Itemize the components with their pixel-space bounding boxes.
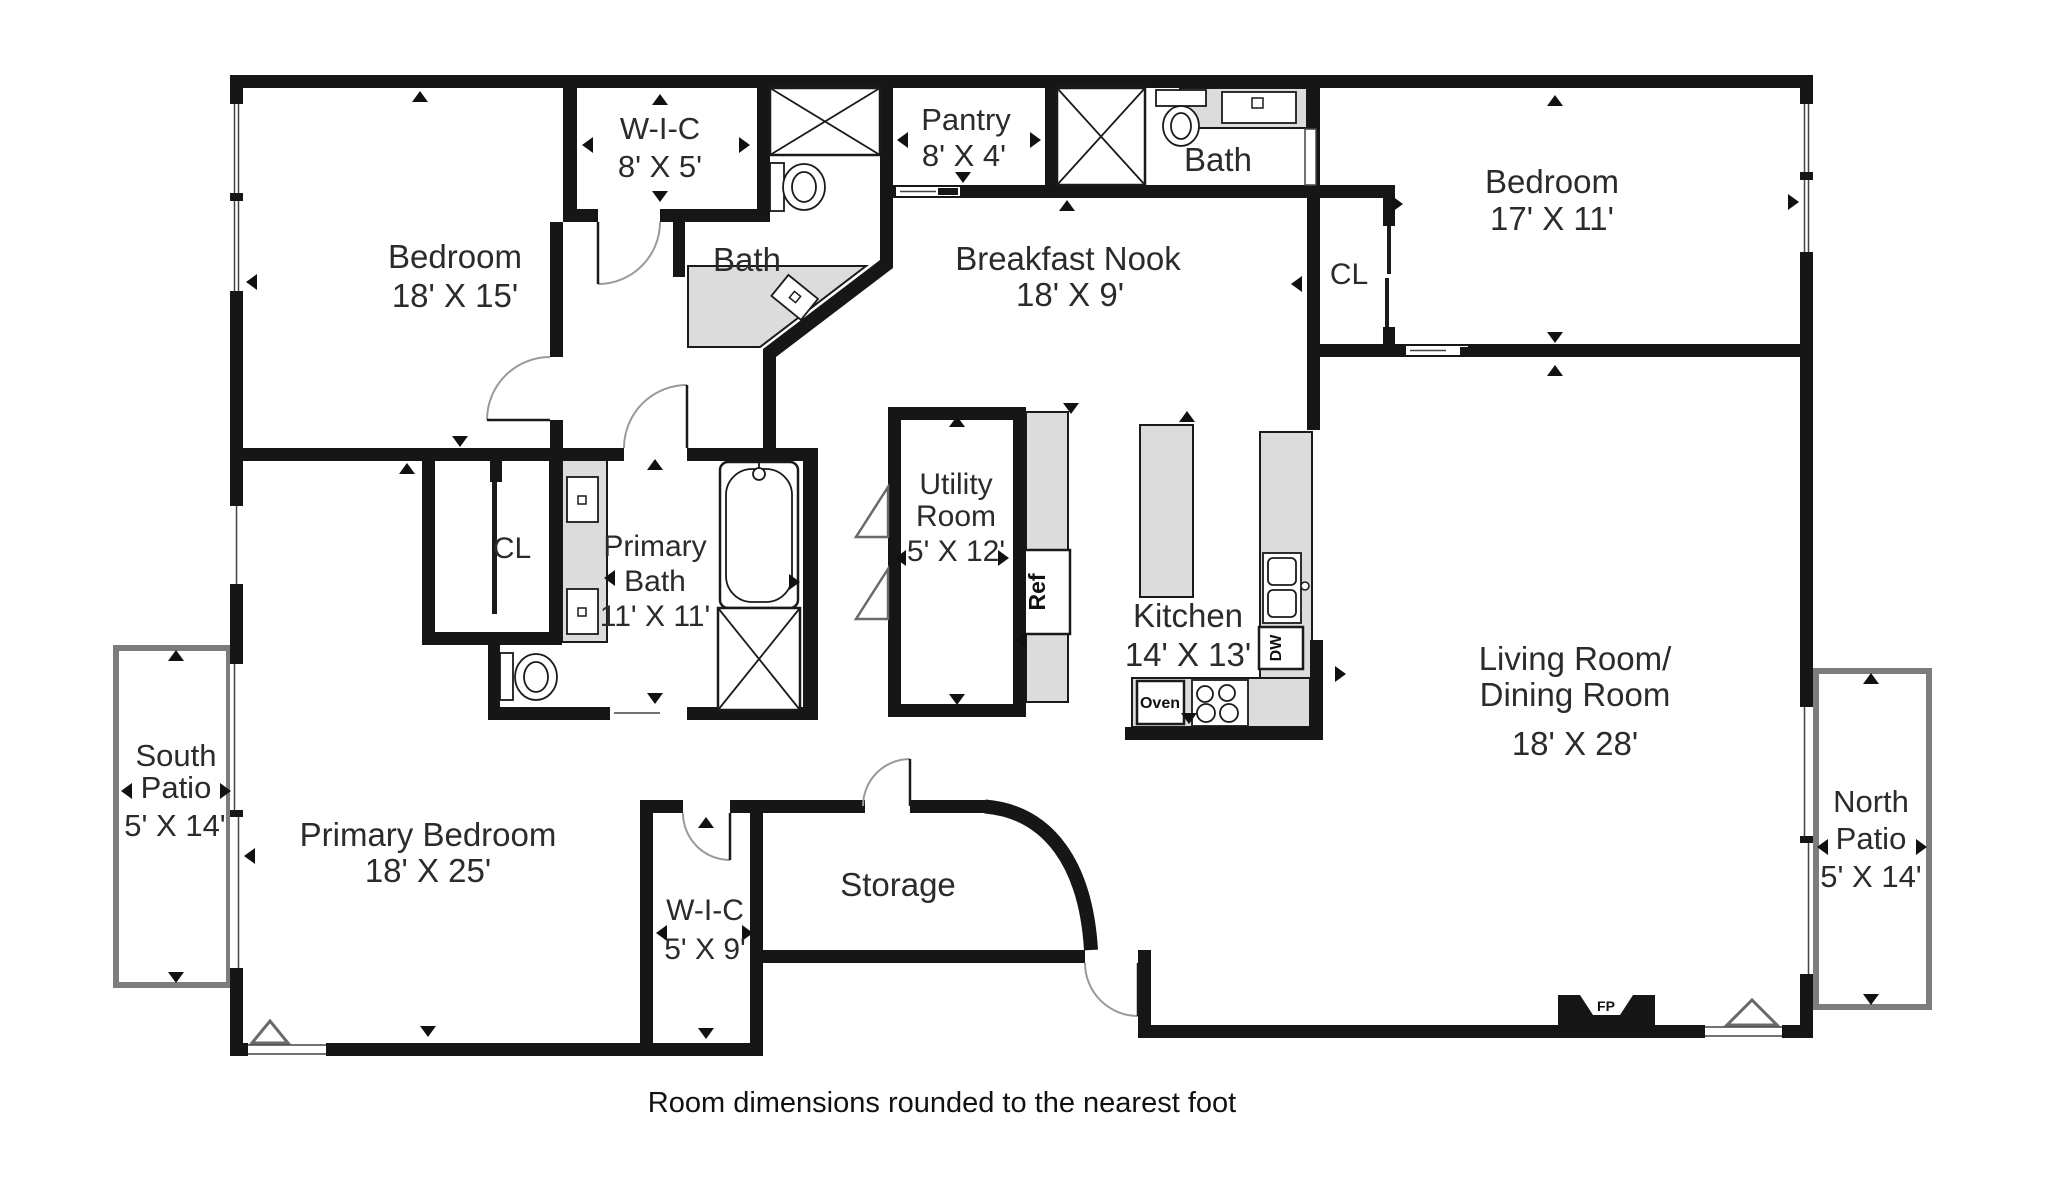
label-fireplace: FP	[1597, 998, 1615, 1014]
wall-pbath-east	[803, 448, 818, 720]
dimension-arrow	[246, 274, 257, 290]
dimension-arrow	[1030, 132, 1041, 148]
dimension-arrow	[1179, 411, 1195, 422]
toilet-bath1	[770, 163, 825, 211]
label-pantry: Pantry 8' X 4'	[921, 102, 1011, 173]
label-closet-tr: CL	[1330, 258, 1368, 291]
room-name: Primary Bedroom	[300, 816, 557, 853]
room-dims: 14' X 13'	[1125, 636, 1251, 673]
wall-utility-south	[888, 704, 1026, 717]
door-bedroom2-entry	[1406, 346, 1486, 355]
wall-wic1-west	[563, 88, 577, 209]
burner-1	[1197, 686, 1213, 702]
primary-sink-1-drain	[578, 496, 586, 504]
door-exterior-sw	[248, 1021, 326, 1056]
dimension-arrow	[412, 91, 428, 102]
wall-pantry-east	[1045, 88, 1057, 198]
dimension-arrow	[897, 132, 908, 148]
wall-entry-jog	[1138, 950, 1151, 1038]
wall-pcl-south	[422, 632, 562, 645]
wall-pcl-east	[549, 448, 562, 645]
room-name-2: Patio	[141, 770, 212, 805]
label-primary-bedroom: Primary Bedroom 18' X 25'	[300, 816, 557, 889]
toilet-bath2	[1156, 90, 1206, 146]
door-primary-bath-pocket	[610, 707, 687, 720]
wall-bedroom2-south	[1307, 344, 1813, 357]
label-bath-upper-left: Bath	[713, 241, 781, 278]
room-dims: 8' X 5'	[618, 149, 702, 184]
dimension-arrow	[698, 817, 714, 828]
wall-bath2-south	[1057, 185, 1395, 198]
shower-primary	[718, 608, 800, 710]
floor-plan-page: Bedroom 18' X 15' W-I-C 8' X 5' Bath Pan…	[0, 0, 2048, 1190]
dimension-arrow	[652, 94, 668, 105]
wall-wic1-south-a	[563, 209, 598, 222]
room-name: Bedroom	[388, 238, 522, 275]
sliding-door-north-patio	[1800, 700, 1813, 981]
label-wic-bottom: W-I-C 5' X 9'	[664, 894, 746, 966]
dimension-arrow	[582, 137, 593, 153]
window-bedroom2	[1800, 97, 1813, 259]
shower-bath1	[770, 88, 880, 155]
wall-kitchen-east-stub	[1310, 640, 1323, 727]
wall-divider-b	[687, 448, 818, 461]
burner-3	[1197, 704, 1215, 722]
bath2-sink-drain	[1252, 98, 1263, 108]
room-dims: 5' X 12'	[907, 535, 1005, 568]
kitchen-island	[1140, 425, 1193, 597]
sliding-door-south-patio	[230, 657, 243, 975]
door-bedroom1	[487, 357, 550, 420]
wall-wic2-north-b	[730, 800, 763, 813]
cltr-bifold-b	[1385, 278, 1389, 327]
wall-storage-north-b	[910, 800, 990, 813]
wall-north	[230, 75, 1813, 88]
room-dims: 5' X 9'	[664, 933, 746, 966]
window-primary-bedroom	[230, 500, 243, 590]
bathtub	[720, 462, 798, 608]
wall-nook-east	[1307, 185, 1320, 430]
wall-wic2-west	[640, 800, 653, 1043]
dimension-arrow	[739, 137, 750, 153]
shower-bath2	[1057, 88, 1145, 185]
wall-bedroom1-east-b	[550, 420, 563, 448]
label-bedroom-tr: Bedroom 17' X 11'	[1485, 163, 1619, 237]
room-name-2: Bath	[624, 565, 686, 598]
wall-wic1-east	[757, 88, 770, 222]
burner-4	[1220, 704, 1238, 722]
dimension-arrow	[1547, 332, 1563, 343]
room-dims: 11' X 11'	[600, 600, 710, 633]
label-oven: Oven	[1140, 695, 1180, 712]
room-name: Kitchen	[1133, 597, 1243, 634]
label-dishwasher: DW	[1268, 634, 1285, 662]
wall-utility-west	[888, 407, 901, 717]
floor-plan-drawing: Bedroom 18' X 15' W-I-C 8' X 5' Bath Pan…	[0, 0, 2048, 1190]
wall-hall-connector	[763, 349, 776, 448]
dimension-arrow	[652, 191, 668, 202]
room-dims: 8' X 4'	[922, 138, 1006, 173]
wall-utility-east	[1013, 407, 1026, 717]
door-primary-bath	[624, 385, 687, 448]
utility-door-leaf-1	[856, 487, 888, 537]
kitchen-faucet	[1301, 582, 1309, 590]
room-dims: 18' X 15'	[392, 277, 518, 314]
label-primary-bath: Primary Bath 11' X 11'	[600, 530, 710, 633]
room-name-1: North	[1833, 784, 1909, 819]
dimension-arrow	[1547, 95, 1563, 106]
room-dims: 5' X 14'	[1820, 859, 1921, 894]
primary-sink-2-drain	[578, 608, 586, 616]
door-exterior-se	[1705, 1000, 1782, 1038]
label-breakfast-nook: Breakfast Nook 18' X 9'	[955, 240, 1181, 313]
room-name-1: Living Room/	[1479, 640, 1672, 677]
label-storage: Storage	[840, 866, 956, 903]
wall-kitchen-south	[1125, 727, 1323, 740]
dimension-arrow	[1788, 194, 1799, 210]
wall-pcl-jamb	[490, 461, 502, 482]
utility-door-leaf-2	[856, 569, 888, 619]
room-dims: 18' X 28'	[1512, 725, 1638, 762]
label-kitchen: Kitchen 14' X 13'	[1125, 597, 1251, 673]
wall-toilet-nook	[488, 634, 500, 720]
wall-pcl-west	[422, 448, 435, 645]
wall-storage-south	[763, 950, 1085, 963]
door-wic1	[598, 222, 660, 284]
caption: Room dimensions rounded to the nearest f…	[648, 1087, 1236, 1119]
wall-bath1-stub	[673, 222, 685, 277]
wall-storage-north-a	[750, 800, 865, 813]
wall-wic2-storage	[750, 800, 763, 1056]
room-name: Breakfast Nook	[955, 240, 1181, 277]
label-refrigerator: Ref	[1024, 573, 1050, 610]
room-dims: 17' X 11'	[1490, 200, 1614, 237]
room-name: Bedroom	[1485, 163, 1619, 200]
room-name-1: Utility	[919, 468, 992, 501]
dimension-arrow	[647, 459, 663, 470]
dimension-arrow	[949, 694, 965, 705]
room-dims: 5' X 14'	[124, 808, 225, 843]
dimension-arrow	[1291, 276, 1302, 292]
door-storage	[863, 759, 910, 806]
dimension-arrow	[955, 172, 971, 183]
room-name-2: Dining Room	[1480, 676, 1671, 713]
room-name-1: Primary	[603, 530, 706, 563]
label-bath-upper-mid: Bath	[1184, 141, 1252, 178]
kitchen-sink-basin-2	[1268, 590, 1296, 617]
wall-bedroom1-east-a	[550, 222, 563, 357]
dimension-arrow	[1392, 196, 1403, 212]
room-name-1: South	[135, 738, 216, 773]
room-name-2: Room	[916, 500, 996, 533]
wall-pbath-south-a	[490, 707, 610, 720]
burner-2	[1219, 685, 1235, 701]
wall-storage-curve	[985, 807, 1091, 951]
door-front-entry	[1085, 963, 1138, 1016]
dimension-arrow	[1335, 666, 1346, 682]
label-closet-primary: CL	[493, 532, 531, 565]
wall-bath1-pantry	[880, 88, 893, 268]
room-name-2: Patio	[1836, 821, 1907, 856]
cltr-bifold-a	[1387, 226, 1391, 274]
room-dims: 18' X 9'	[1016, 276, 1124, 313]
door-pantry	[896, 187, 960, 196]
dimension-arrow	[244, 848, 255, 864]
room-name: W-I-C	[666, 894, 744, 927]
dimension-arrow	[452, 436, 468, 447]
wall-wic1-south-b	[660, 209, 770, 222]
window-bedroom1	[230, 97, 243, 298]
room-name: Pantry	[921, 102, 1011, 137]
door-bath2-leaf	[1305, 129, 1316, 185]
label-living-dining: Living Room/ Dining Room 18' X 28'	[1479, 640, 1672, 762]
toilet-primary	[500, 653, 557, 700]
dimension-arrow	[1547, 365, 1563, 376]
room-name: W-I-C	[620, 111, 700, 146]
label-bedroom-tl: Bedroom 18' X 15'	[388, 238, 522, 314]
kitchen-sink-basin-1	[1268, 558, 1296, 585]
dimension-arrow	[698, 1028, 714, 1039]
dimension-arrow	[1059, 200, 1075, 211]
label-utility: Utility Room 5' X 12'	[907, 468, 1005, 568]
dimension-arrow	[647, 693, 663, 704]
dimension-arrow	[420, 1026, 436, 1037]
room-dims: 18' X 25'	[365, 852, 491, 889]
label-wic-top: W-I-C 8' X 5'	[618, 111, 702, 184]
dimension-arrow	[399, 463, 415, 474]
